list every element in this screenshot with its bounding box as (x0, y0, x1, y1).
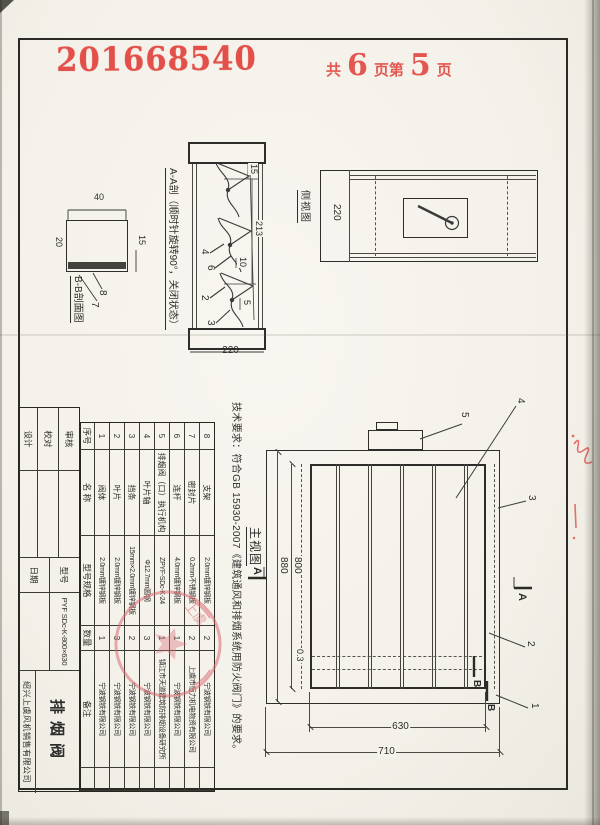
scan-edge-shadow-bottom (0, 817, 600, 825)
red-seal-stamp: 上虞 (16, 40, 566, 792)
seal-visible-chars: 上虞 (182, 599, 210, 629)
page-stamp-suffix: 页 (437, 59, 452, 80)
serial-number-stamp: 201668540 (56, 38, 257, 79)
scanned-drawing-page: 220 侧视图 (0, 0, 600, 825)
scan-edge-shadow-left (0, 0, 2, 825)
page-count-stamp: 共 6 页第 5 页 (326, 48, 452, 83)
page-stamp-prefix: 共 (326, 59, 341, 80)
scan-corner-mark-bottom-left (0, 811, 9, 825)
drawing-sheet-frame: 220 侧视图 (18, 38, 568, 790)
scan-edge-line (592, 0, 594, 825)
paper-crease (0, 334, 600, 336)
scan-corner-mark-top-left (0, 0, 14, 13)
page-stamp-middle: 页第 (374, 59, 404, 80)
page-stamp-total: 6 (347, 48, 368, 83)
page-stamp-current: 5 (410, 48, 431, 83)
